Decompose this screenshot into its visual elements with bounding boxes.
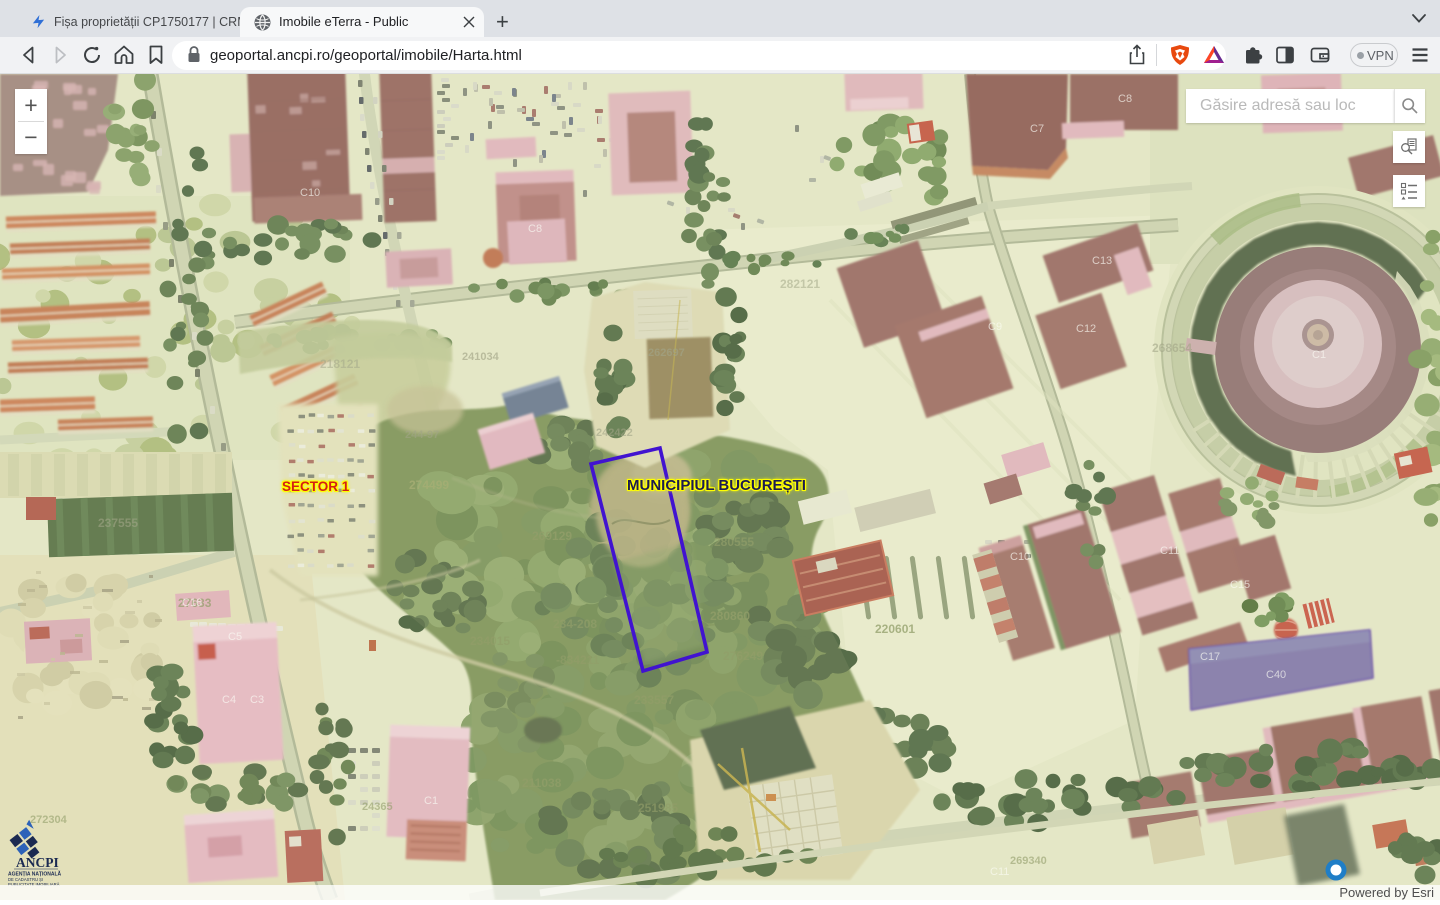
svg-text:ANCPI: ANCPI xyxy=(16,855,59,870)
